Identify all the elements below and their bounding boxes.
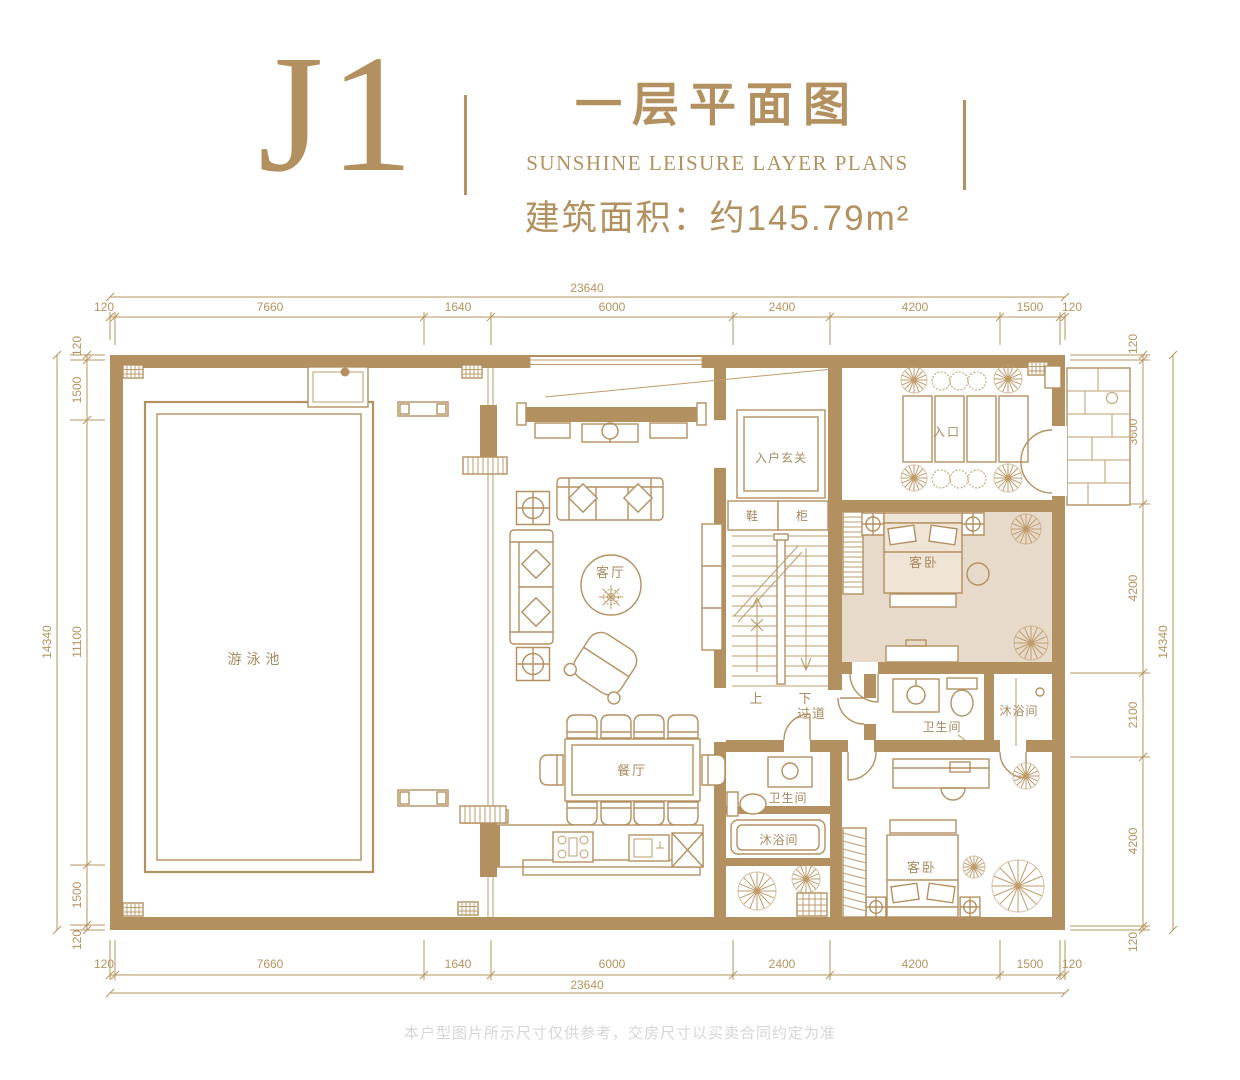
dining-label: 餐厅 bbox=[617, 763, 647, 778]
cooktop bbox=[553, 832, 593, 862]
dim-bot-total: 23640 bbox=[570, 978, 604, 992]
dim-right-seg3: 2100 bbox=[1126, 701, 1140, 728]
dim-bot-seg6: 1500 bbox=[1017, 957, 1044, 971]
lounge-chair bbox=[562, 624, 646, 706]
dim-left-seg3: 1500 bbox=[70, 881, 84, 908]
corridor-label: 过道 bbox=[797, 706, 827, 721]
dim-top-seg4: 2400 bbox=[769, 300, 796, 314]
nightstand-2 bbox=[962, 513, 984, 535]
foyer-label: 入户玄关 bbox=[755, 450, 807, 465]
tv-console bbox=[517, 403, 706, 442]
bath1-label: 卫生间 bbox=[922, 720, 961, 734]
stairs-down-label: 下 bbox=[798, 691, 813, 706]
vanity-2 bbox=[768, 757, 812, 787]
staircase: 上 下 bbox=[732, 534, 828, 706]
pool-label: 游泳池 bbox=[228, 651, 285, 667]
dimensions-top: 23640 120 7660 1640 6000 2400 4200 1500 … bbox=[94, 281, 1082, 345]
dimensions-bottom: 120 7660 1640 6000 2400 4200 1500 120 23… bbox=[94, 940, 1082, 997]
living-label: 客厅 bbox=[596, 565, 626, 580]
wall-cabinet bbox=[702, 524, 722, 650]
dim-bot-seg4: 2400 bbox=[769, 957, 796, 971]
shoe-cabinet-right-label: 柜 bbox=[796, 509, 810, 523]
sofa-side bbox=[510, 530, 553, 644]
outdoor-shower bbox=[308, 367, 368, 407]
closet-hatch bbox=[843, 512, 863, 594]
dim-top-seg6: 1500 bbox=[1017, 300, 1044, 314]
exterior-path bbox=[1067, 368, 1130, 505]
rug bbox=[581, 555, 641, 615]
bedroom2-door bbox=[848, 752, 876, 780]
garden-patch bbox=[738, 865, 827, 916]
pool-bench-bottom bbox=[398, 790, 448, 806]
bedroom1-label: 客卧 bbox=[909, 555, 939, 570]
pool-area: 游泳池 bbox=[145, 367, 508, 872]
shoe-cabinet-left-label: 鞋 bbox=[746, 508, 760, 523]
nightstand-1 bbox=[862, 513, 884, 535]
dim-top-seg5: 4200 bbox=[902, 300, 929, 314]
foyer: 入户玄关 鞋 柜 bbox=[728, 410, 828, 530]
nightstand-3 bbox=[866, 897, 886, 917]
dim-left-seg4: 120 bbox=[70, 930, 84, 950]
dim-bot-seg0: 120 bbox=[94, 957, 114, 971]
dim-bot-seg2: 1640 bbox=[445, 957, 472, 971]
entrance-walkway: 入口 bbox=[901, 365, 1052, 493]
sofa-main bbox=[557, 478, 663, 520]
wardrobe-2 bbox=[843, 828, 866, 917]
dim-right-seg2: 4200 bbox=[1126, 574, 1140, 601]
pool-bench-top bbox=[398, 402, 448, 416]
vanity-1 bbox=[893, 679, 939, 712]
nightstand-4 bbox=[960, 897, 980, 917]
dim-top-seg3: 6000 bbox=[599, 300, 626, 314]
shower2-label: 沐浴间 bbox=[759, 833, 798, 847]
side-table-1 bbox=[517, 492, 550, 525]
dim-bot-seg7: 120 bbox=[1062, 957, 1082, 971]
sink bbox=[629, 835, 669, 861]
dim-left-total: 14340 bbox=[40, 625, 54, 659]
dim-top-seg7: 120 bbox=[1062, 300, 1082, 314]
bath2-label: 卫生间 bbox=[768, 791, 807, 805]
toilet-2 bbox=[727, 792, 766, 816]
disclaimer-text: 本户型图片所示尺寸仅供参考，交房尺寸以买卖合同约定为准 bbox=[0, 1022, 1240, 1043]
shower1-label: 沐浴间 bbox=[999, 704, 1038, 718]
dim-top-total: 23640 bbox=[570, 281, 604, 295]
floor-plan: 23640 120 7660 1640 6000 2400 4200 1500 … bbox=[0, 0, 1240, 1080]
bath1-door bbox=[838, 698, 864, 724]
dim-bot-seg3: 6000 bbox=[599, 957, 626, 971]
dim-top-seg1: 7660 bbox=[257, 300, 284, 314]
stairs-up-label: 上 bbox=[749, 691, 764, 706]
dim-bot-seg5: 4200 bbox=[902, 957, 929, 971]
dim-bot-seg1: 7660 bbox=[257, 957, 284, 971]
desk bbox=[893, 759, 989, 800]
kitchen-counter bbox=[483, 825, 703, 875]
appliance-box bbox=[672, 833, 703, 867]
toilet-1 bbox=[947, 678, 977, 716]
dim-top-seg0: 120 bbox=[94, 300, 114, 314]
dim-right-seg0: 120 bbox=[1126, 334, 1140, 354]
entrance-label: 入口 bbox=[933, 425, 961, 439]
dim-left-seg0: 120 bbox=[70, 336, 84, 356]
dimensions-left: 120 1500 11100 1500 120 14340 bbox=[40, 336, 105, 950]
dim-right-seg5: 120 bbox=[1126, 932, 1140, 952]
dim-left-seg2: 11100 bbox=[70, 626, 84, 658]
living-room: 客厅 bbox=[510, 403, 722, 706]
side-table-2 bbox=[517, 648, 550, 681]
bedroom-2: 客卧 bbox=[843, 752, 1044, 917]
dim-right-total: 14340 bbox=[1156, 625, 1170, 659]
dining-room: 餐厅 bbox=[540, 715, 725, 825]
dim-top-seg2: 1640 bbox=[445, 300, 472, 314]
dim-right-seg4: 4200 bbox=[1126, 827, 1140, 854]
dim-left-seg1: 1500 bbox=[70, 376, 84, 403]
bedroom2-label: 客卧 bbox=[907, 860, 937, 875]
